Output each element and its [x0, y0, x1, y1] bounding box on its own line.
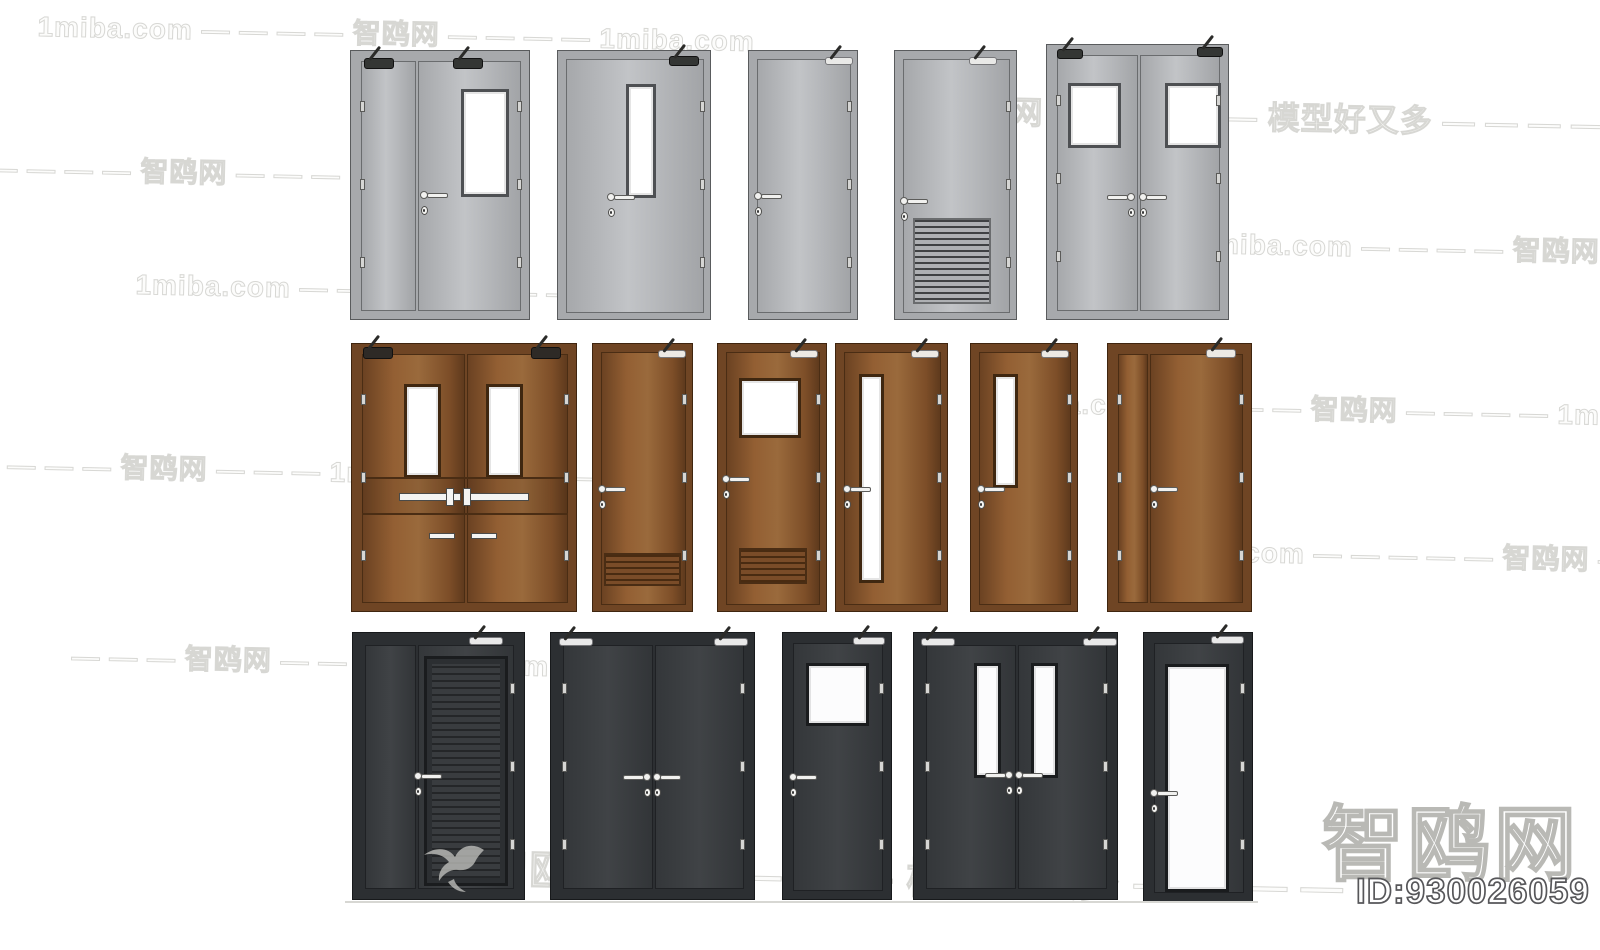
door-handle-lever — [1157, 791, 1178, 796]
door-leaf — [361, 61, 416, 311]
steel-double-door-vision-panel — [350, 50, 530, 320]
door-vision-window — [626, 84, 656, 198]
hinge — [1239, 550, 1244, 561]
door-handle-lever — [761, 194, 782, 199]
hinge — [682, 394, 687, 405]
hinge — [1056, 251, 1061, 262]
keyhole — [1006, 786, 1013, 795]
panic-push-bar — [471, 533, 497, 539]
door-vision-window — [974, 663, 1001, 778]
hinge — [740, 683, 745, 694]
panic-push-bar — [446, 488, 454, 506]
door-handle-lever — [796, 775, 817, 780]
hinge — [562, 839, 567, 850]
model-id-label: ID:930026059 — [1356, 872, 1590, 912]
hinge — [925, 683, 930, 694]
steel-door-louver — [894, 50, 1017, 320]
door-vision-window — [486, 384, 523, 478]
door-handle-lever — [605, 487, 626, 492]
hinge — [1216, 251, 1221, 262]
hinge — [937, 550, 942, 561]
hinge — [510, 683, 515, 694]
door-leaf — [757, 59, 851, 313]
hinge — [682, 550, 687, 561]
door-handle-lever — [1157, 487, 1178, 492]
hinge — [1239, 472, 1244, 483]
hinge — [360, 101, 365, 112]
keyhole — [421, 206, 428, 215]
steel-double-door-square-windows — [1046, 44, 1229, 320]
hinge — [847, 101, 852, 112]
dark-double-door-vision-panels — [913, 632, 1118, 900]
hinge — [1216, 95, 1221, 106]
hinge — [700, 179, 705, 190]
hinge — [510, 839, 515, 850]
hinge — [1067, 550, 1072, 561]
door-handle-lever — [421, 774, 442, 779]
hinge — [517, 179, 522, 190]
door-vision-window — [739, 378, 801, 438]
keyhole — [1151, 804, 1158, 813]
dark-door-glass — [1143, 632, 1253, 902]
seagull-icon — [418, 840, 490, 898]
hinge — [1103, 683, 1108, 694]
louver-vent — [604, 553, 681, 586]
hinge — [564, 550, 569, 561]
hinge — [1216, 173, 1221, 184]
door-vision-window — [993, 374, 1018, 488]
door-vision-window — [1165, 664, 1229, 892]
wood-door-short-vision — [970, 343, 1078, 612]
hinge — [925, 839, 930, 850]
watermark-text: 1miba.com — — — — 智鸥网 — — — [1197, 222, 1600, 272]
keyhole — [654, 788, 661, 797]
hinge — [879, 683, 884, 694]
hinge — [1103, 761, 1108, 772]
keyhole — [978, 500, 985, 509]
door-handle-lever — [1146, 195, 1167, 200]
hinge — [816, 472, 821, 483]
door-vision-window — [806, 663, 869, 726]
door-leaf — [365, 645, 416, 889]
hinge — [700, 257, 705, 268]
keyhole — [844, 500, 851, 509]
steel-door-plain — [748, 50, 858, 320]
door-vision-window — [859, 374, 884, 583]
wood-door-tall-vision — [835, 343, 948, 612]
steel-door-narrow-vision — [557, 50, 711, 320]
keyhole — [1128, 208, 1135, 217]
door-handle-lever — [427, 193, 448, 198]
hinge — [879, 839, 884, 850]
hinge — [740, 839, 745, 850]
watermark-text: 1miba.com — — — — 智鸥网 — — — — 1miba.com — [995, 381, 1600, 436]
hinge — [361, 550, 366, 561]
door-leaf — [926, 645, 1016, 889]
door-handle-lever — [614, 195, 635, 200]
hinge — [1006, 101, 1011, 112]
hinge — [1117, 394, 1122, 405]
hinge — [1056, 173, 1061, 184]
keyhole — [1151, 500, 1158, 509]
door-handle — [1005, 771, 1013, 779]
door-handle-lever — [985, 773, 1006, 778]
wood-double-door-plain — [1107, 343, 1252, 612]
hinge — [361, 472, 366, 483]
door-handle-lever — [850, 487, 871, 492]
door-handle — [643, 773, 651, 781]
dark-door-square-window — [782, 632, 892, 900]
door-leaf — [1150, 354, 1243, 603]
louver-vent — [913, 218, 991, 304]
panic-push-bar — [463, 488, 471, 506]
hinge — [682, 472, 687, 483]
hinge — [1006, 257, 1011, 268]
watermark-text: 智鸥网 — — — — — 模型好又多 — — — — — [944, 86, 1600, 146]
hinge — [1006, 179, 1011, 190]
hinge — [562, 683, 567, 694]
wood-double-door-panic-bar — [351, 343, 577, 612]
hinge — [816, 394, 821, 405]
keyhole — [1140, 208, 1147, 217]
keyhole — [608, 208, 615, 217]
panic-push-bar — [429, 533, 455, 539]
door-vision-window — [1031, 663, 1058, 778]
hinge — [360, 257, 365, 268]
keyhole — [1016, 786, 1023, 795]
hinge — [1056, 95, 1061, 106]
door-vision-window — [461, 89, 509, 197]
wood-door-louver — [592, 343, 693, 612]
hinge — [564, 394, 569, 405]
hinge — [700, 101, 705, 112]
hinge — [361, 394, 366, 405]
door-handle — [1127, 193, 1135, 201]
hinge — [517, 101, 522, 112]
hinge — [1240, 761, 1245, 772]
floor-shadow-line — [345, 901, 1258, 903]
keyhole — [599, 500, 606, 509]
hinge — [510, 761, 515, 772]
hinge — [847, 257, 852, 268]
door-leaf — [563, 645, 653, 889]
hinge — [816, 550, 821, 561]
door-handle-lever — [623, 775, 644, 780]
door-vision-window — [404, 384, 441, 478]
hinge — [360, 179, 365, 190]
door-handle-lever — [660, 775, 681, 780]
door-handle-lever — [1107, 195, 1128, 200]
keyhole — [644, 788, 651, 797]
hinge — [1239, 394, 1244, 405]
hinge — [1117, 472, 1122, 483]
door-handle-lever — [1022, 773, 1043, 778]
hinge — [517, 257, 522, 268]
door-vision-window — [1165, 83, 1221, 148]
door-handle-lever — [907, 199, 928, 204]
hinge — [564, 472, 569, 483]
keyhole — [790, 788, 797, 797]
door-leaf — [1118, 354, 1148, 603]
hinge — [879, 761, 884, 772]
hinge — [847, 179, 852, 190]
hinge — [1067, 472, 1072, 483]
panic-push-bar — [467, 493, 529, 501]
louver-vent — [739, 548, 807, 584]
keyhole — [755, 207, 762, 216]
door-handle-lever — [984, 487, 1005, 492]
wood-door-window-louver — [717, 343, 827, 612]
hinge — [1103, 839, 1108, 850]
hinge — [1240, 683, 1245, 694]
hinge — [740, 761, 745, 772]
model-preview-image: 1miba.com — — — — 智鸥网 — — — — 1miba.com智… — [0, 0, 1600, 950]
hinge — [1117, 550, 1122, 561]
door-leaf — [655, 645, 744, 889]
hinge — [562, 761, 567, 772]
hinge — [937, 394, 942, 405]
hinge — [937, 472, 942, 483]
keyhole — [415, 787, 422, 796]
hinge — [1240, 839, 1245, 850]
hinge — [1067, 394, 1072, 405]
hinge — [925, 761, 930, 772]
keyhole — [723, 490, 730, 499]
door-vision-window — [1068, 83, 1121, 148]
door-handle-lever — [729, 477, 750, 482]
keyhole — [901, 212, 908, 221]
dark-double-door-plain — [550, 632, 755, 900]
